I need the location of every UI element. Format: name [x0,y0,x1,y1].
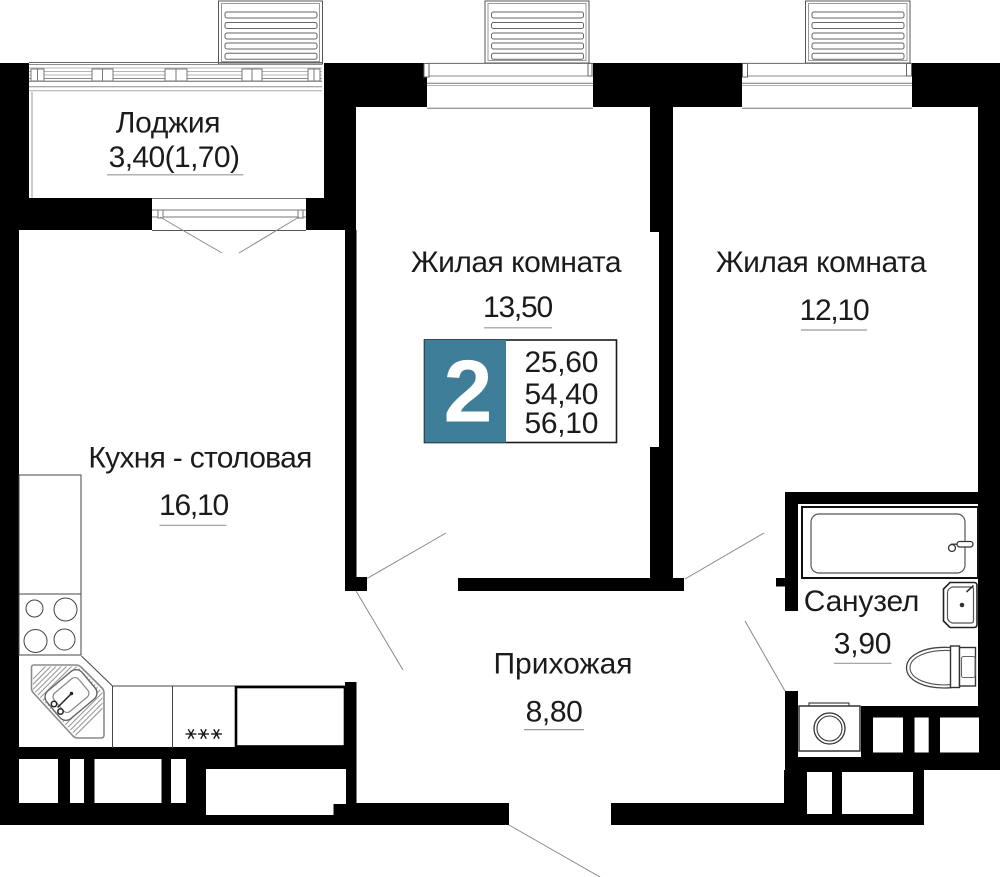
svg-text:Кухня - столовая: Кухня - столовая [88,442,311,475]
svg-text:Жилая комната: Жилая комната [411,246,622,279]
svg-text:13,50: 13,50 [483,291,553,324]
svg-text:56,10: 56,10 [525,407,599,440]
svg-text:3,90: 3,90 [834,628,892,661]
svg-text:Лоджия: Лоджия [116,107,221,140]
svg-text:Прихожая: Прихожая [493,648,632,681]
svg-text:2: 2 [444,342,493,441]
svg-text:Жилая комната: Жилая комната [716,246,927,279]
svg-text:8,80: 8,80 [526,696,583,729]
svg-text:3,40(1,70): 3,40(1,70) [109,141,240,174]
svg-text:16,10: 16,10 [159,489,229,522]
svg-text:12,10: 12,10 [799,294,869,327]
svg-text:Санузел: Санузел [804,585,919,618]
svg-text:25,60: 25,60 [525,346,599,379]
